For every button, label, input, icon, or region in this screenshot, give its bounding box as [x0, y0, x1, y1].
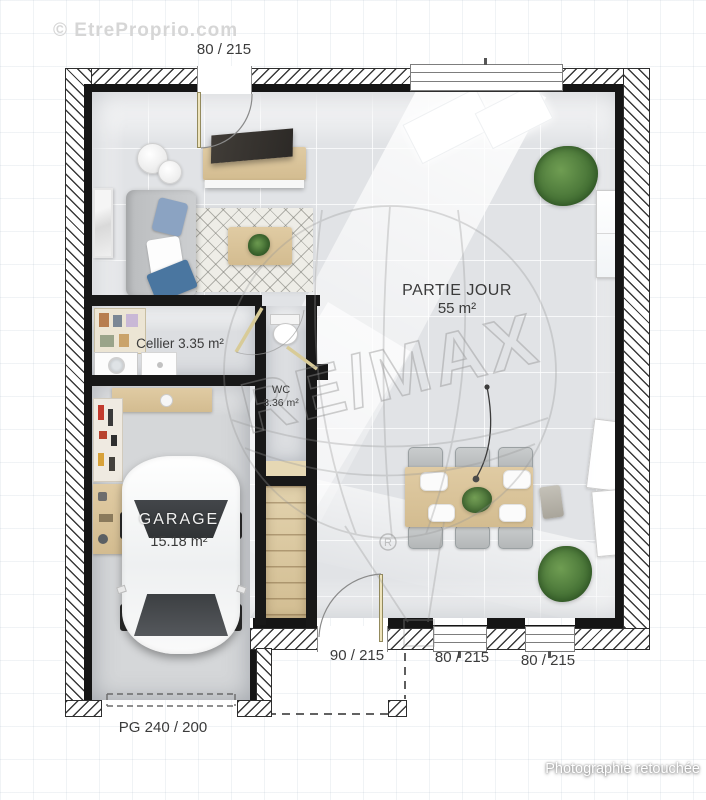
wall-wc-stairs — [255, 476, 317, 486]
shelf-item — [100, 335, 114, 347]
wall-edge — [575, 618, 623, 628]
place-setting — [428, 504, 455, 522]
tool-pegboard — [93, 398, 123, 482]
shelf-item — [126, 314, 138, 327]
dimension-bottom-window-1: 80 / 215 — [423, 649, 501, 666]
dining-chair — [408, 525, 443, 549]
window-bottom-2 — [525, 626, 575, 652]
wall-hall-vertical — [306, 295, 317, 628]
floor-plant — [538, 546, 592, 602]
floorplan-image: RE/MAX R © EtreProprio.com 80 / 215 PART… — [0, 0, 706, 800]
room-label-wc: WC 3.36 m² — [258, 384, 304, 409]
high-stool — [539, 485, 564, 520]
shelf-item — [99, 313, 109, 327]
room-label-cellier: Cellier 3.35 m² — [128, 336, 232, 352]
garage-workbench — [112, 388, 212, 412]
wall-edge — [84, 84, 92, 700]
dimension-bottom-door: 90 / 215 — [318, 647, 396, 664]
window-frame-line — [526, 634, 574, 635]
terrace-post-stub — [388, 700, 407, 717]
shelf-item — [99, 514, 113, 522]
car-windshield — [134, 594, 228, 636]
corner-plant — [534, 146, 598, 206]
room-area: 55 m² — [377, 300, 537, 317]
dimension-garage-door: PG 240 / 200 — [101, 719, 225, 736]
tool — [99, 431, 107, 439]
wall-picture-frame — [93, 188, 113, 258]
room-area-garage: 15.18 m² — [132, 534, 226, 551]
wall-stairs-left — [255, 306, 266, 625]
room-area: 3.36 m² — [258, 397, 304, 409]
appliance — [141, 352, 177, 377]
dimension-bottom-window-2: 80 / 215 — [509, 652, 587, 669]
staircase — [266, 486, 306, 618]
room-name: WC — [258, 384, 304, 397]
tool — [111, 435, 117, 446]
dining-chair — [455, 525, 490, 549]
tool — [98, 405, 104, 420]
tool — [98, 453, 104, 466]
side-table — [158, 160, 182, 184]
room-label-partie-jour: PARTIE JOUR 55 m² — [377, 282, 537, 318]
shelf-item — [98, 534, 108, 544]
washer-door — [108, 357, 125, 374]
dining-chair — [498, 525, 533, 549]
window-frame-line — [411, 72, 562, 73]
place-setting — [503, 470, 531, 489]
car — [122, 456, 240, 654]
shelf-item — [113, 315, 122, 327]
window-frame-line — [411, 81, 562, 82]
place-setting — [499, 504, 526, 522]
window-frame-line — [434, 634, 486, 635]
room-name: PARTIE JOUR — [377, 282, 537, 300]
wall-edge — [487, 618, 525, 628]
watermark-photo-note: Photographie retouchée — [538, 761, 700, 778]
wall-edge — [252, 84, 410, 92]
tool — [109, 457, 115, 471]
stair-landing — [266, 461, 306, 476]
bowl — [160, 394, 173, 407]
appliance-knob — [157, 362, 163, 368]
wall-living-cellier — [90, 295, 262, 306]
wall-edge — [615, 90, 623, 618]
garage-shelf — [93, 484, 123, 554]
window-frame-line — [434, 642, 486, 643]
shelf-item — [98, 492, 107, 501]
wall-cellier-garage — [90, 375, 255, 386]
place-setting — [420, 472, 448, 491]
skylight — [475, 92, 554, 149]
door-opening-top — [197, 66, 252, 94]
wall-edge — [90, 84, 197, 92]
window-frame-line — [526, 642, 574, 643]
wall-edge — [563, 84, 623, 92]
room-label-garage: GARAGE — [132, 511, 226, 529]
window-tick — [484, 58, 487, 65]
watermark-site: © EtreProprio.com — [53, 20, 293, 42]
window-top — [410, 64, 563, 91]
tv-stand-shelf — [205, 180, 304, 188]
wall-right — [623, 68, 650, 650]
door-leaf-bottom — [379, 574, 383, 642]
wall-edge — [250, 650, 256, 700]
wall-wc-doorstop — [317, 364, 328, 380]
dimension-top-door: 80 / 215 — [184, 41, 264, 58]
wall-garage-stub-left — [65, 700, 102, 717]
toilet-bowl — [273, 323, 298, 345]
wall-edge — [388, 618, 433, 628]
washing-machine — [94, 352, 138, 377]
wall-garage-stub-right — [237, 700, 272, 717]
door-leaf-top — [197, 92, 201, 148]
tool — [108, 409, 113, 426]
